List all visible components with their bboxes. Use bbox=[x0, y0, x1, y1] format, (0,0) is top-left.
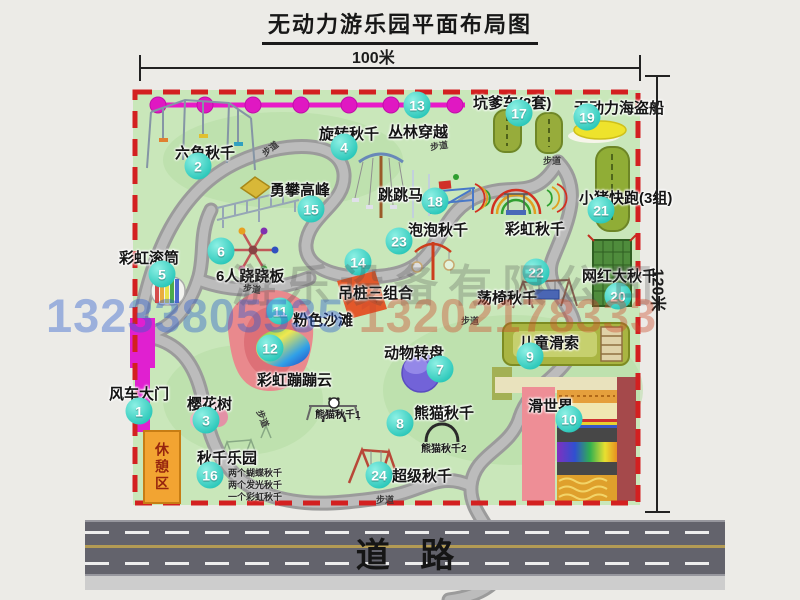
page-title-text: 无动力游乐园平面布局图 bbox=[262, 7, 538, 45]
screenshot-root: 无动力游乐园平面布局图 100米 120米 bbox=[0, 0, 800, 600]
width-dimension-label: 100米 bbox=[352, 44, 395, 68]
road-label: 道路 bbox=[85, 528, 725, 577]
road: 道路 bbox=[85, 520, 725, 576]
phone-watermark: 13233805535 13202178333 bbox=[46, 288, 657, 343]
page-title: 无动力游乐园平面布局图 bbox=[0, 7, 800, 45]
phone-number-2: 13202178333 bbox=[359, 289, 658, 342]
phone-number-1: 13233805535 bbox=[46, 289, 345, 342]
